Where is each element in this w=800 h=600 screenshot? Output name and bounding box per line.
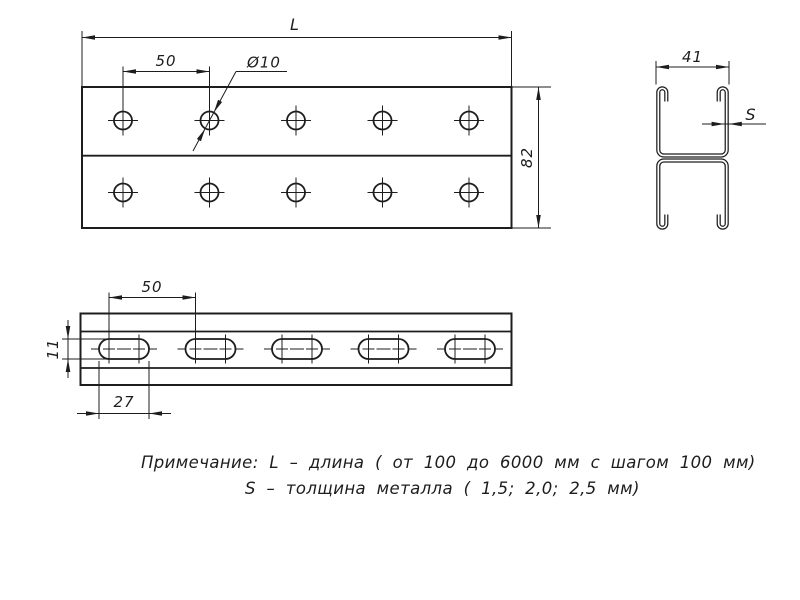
dim-hole-spacing: 50 [123, 52, 210, 107]
dim-slot-height: 11 [44, 320, 112, 378]
hole [454, 106, 484, 136]
dim-slot-spacing-label: 50 [141, 278, 162, 296]
hole [368, 178, 398, 208]
dim-slot-spacing: 50 [109, 278, 196, 337]
section-view: 41 S [656, 48, 766, 228]
channel-profile-bottom [658, 161, 726, 228]
dim-slot-length-label: 27 [113, 393, 134, 411]
hole [108, 178, 138, 208]
dim-thickness-label: S [745, 105, 756, 124]
dim-channel-width-label: 41 [682, 48, 703, 66]
dim-hole-diameter: Ø10 [193, 54, 287, 152]
top-view: L 50 Ø10 82 [82, 15, 551, 228]
dim-length: L [82, 15, 512, 87]
dim-slot-height-label: 11 [44, 338, 62, 359]
hole-diameter-label: Ø10 [246, 54, 281, 72]
slot [178, 335, 244, 364]
dim-slot-length: 27 [77, 361, 171, 419]
dim-height: 82 [512, 87, 552, 228]
drawing-canvas: L 50 Ø10 82 [0, 0, 800, 600]
channel-profile-top [658, 88, 726, 155]
dim-hole-spacing-label: 50 [155, 52, 176, 70]
hole [454, 178, 484, 208]
dim-channel-width: 41 [656, 48, 729, 85]
slot [437, 335, 503, 364]
hole [281, 106, 311, 136]
hole [281, 178, 311, 208]
side-view: 50 11 27 [44, 278, 512, 419]
slot-row [91, 335, 503, 364]
slot [351, 335, 417, 364]
note-line-1: Примечание: L – длина ( от 100 до 6000 м… [141, 453, 756, 472]
technical-drawing: L 50 Ø10 82 [0, 0, 800, 600]
dim-length-label: L [290, 15, 300, 34]
hole [108, 106, 138, 136]
top-view-outline [82, 87, 512, 228]
dim-thickness: S [702, 105, 766, 126]
slot [264, 335, 330, 364]
dim-height-label: 82 [518, 147, 536, 168]
hole [368, 106, 398, 136]
hole [195, 178, 225, 208]
note-line-2: S – толщина металла ( 1,5; 2,0; 2,5 мм) [245, 479, 640, 498]
hole-row-top [108, 106, 484, 136]
hole-row-bottom [108, 178, 484, 208]
notes: Примечание: L – длина ( от 100 до 6000 м… [141, 453, 756, 498]
